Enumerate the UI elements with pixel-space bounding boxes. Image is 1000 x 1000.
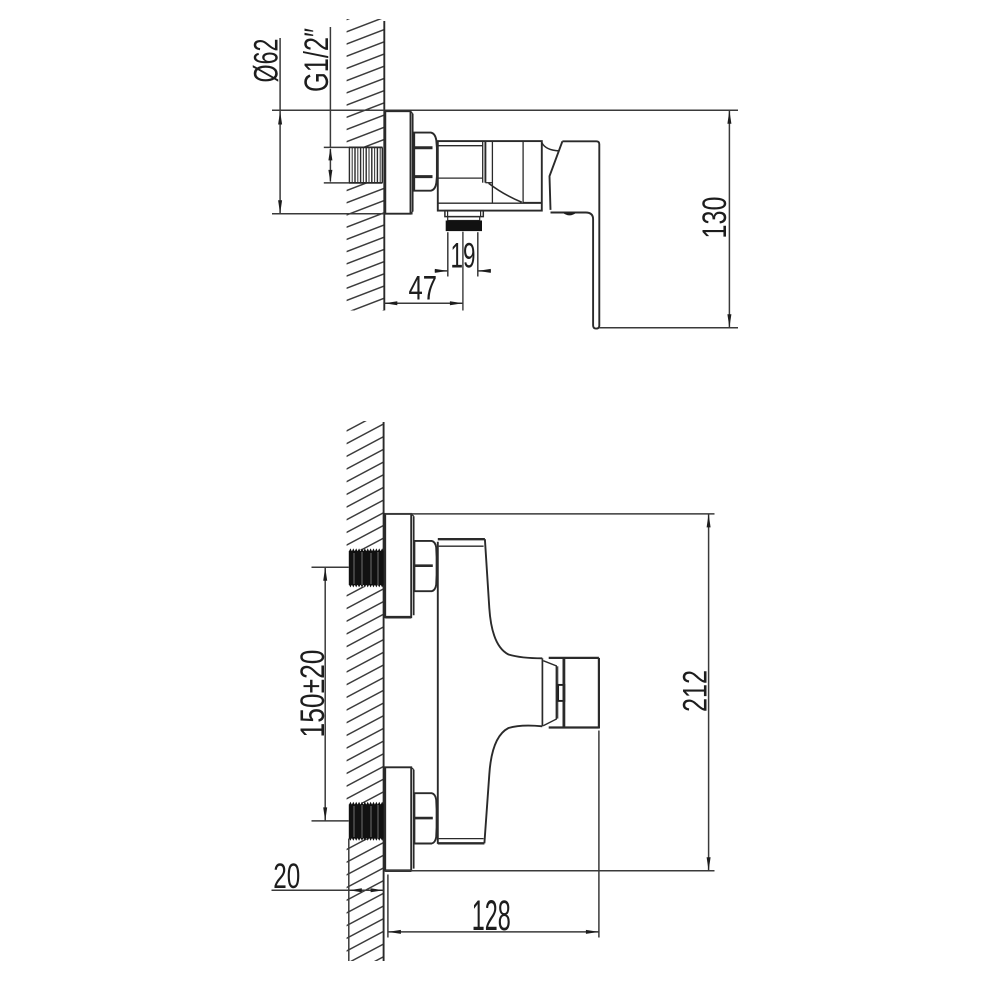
svg-text:47: 47 (409, 270, 438, 308)
svg-text:212: 212 (677, 670, 715, 712)
svg-text:128: 128 (472, 892, 511, 940)
svg-text:20: 20 (273, 856, 300, 896)
svg-text:Ø62: Ø62 (247, 39, 285, 83)
svg-text:G1/2″: G1/2″ (298, 28, 336, 92)
svg-text:130: 130 (696, 197, 734, 239)
svg-text:150±20: 150±20 (294, 650, 332, 738)
